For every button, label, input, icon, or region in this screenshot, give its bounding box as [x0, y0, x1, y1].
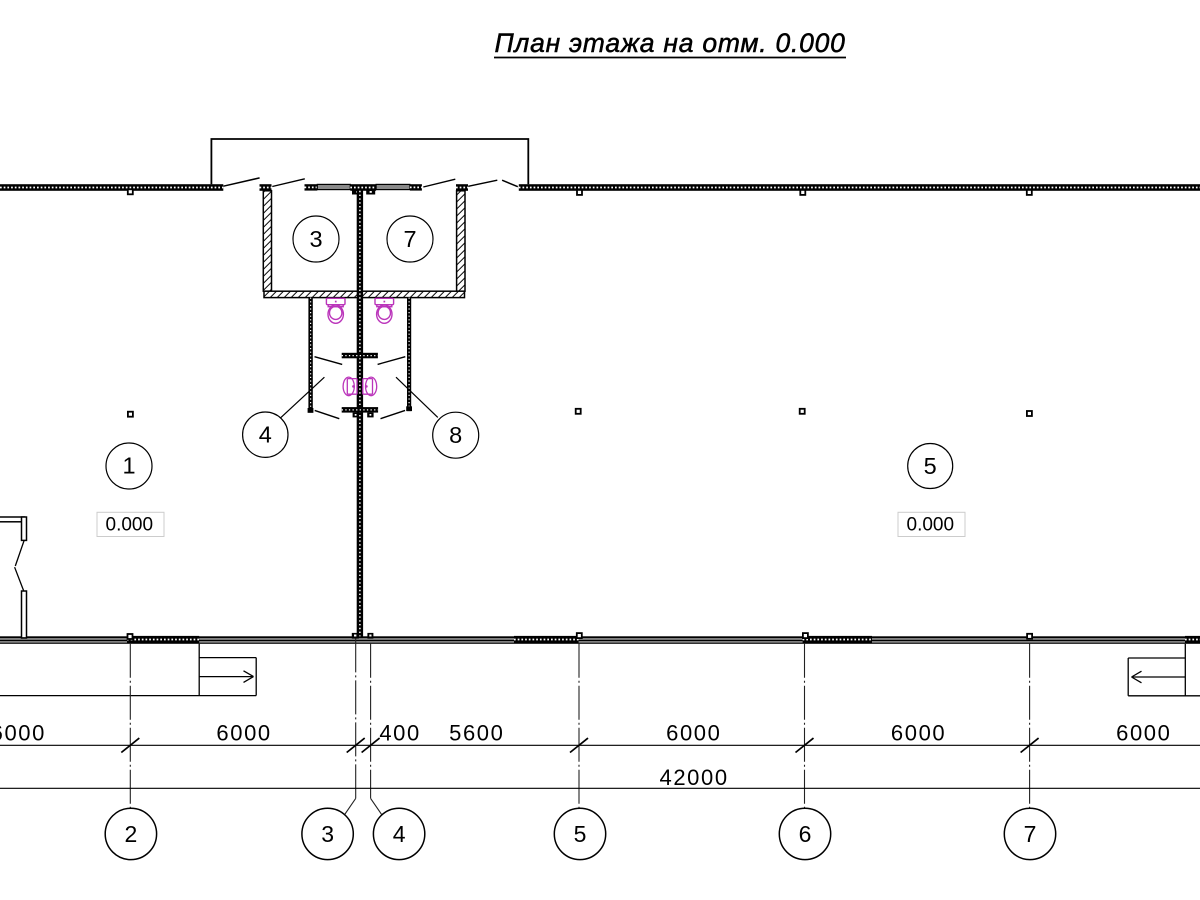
svg-text:400: 400 — [379, 720, 421, 745]
svg-text:0.000: 0.000 — [106, 515, 154, 536]
svg-text:6000: 6000 — [1116, 720, 1171, 745]
svg-text:7: 7 — [1024, 821, 1037, 847]
svg-text:План этажа на отм. 0.000: План этажа на отм. 0.000 — [494, 28, 845, 58]
svg-text:4: 4 — [393, 821, 406, 847]
svg-text:3: 3 — [309, 226, 322, 252]
svg-text:5: 5 — [574, 821, 587, 847]
svg-text:8: 8 — [449, 422, 462, 448]
svg-text:5: 5 — [924, 453, 937, 479]
svg-text:6000: 6000 — [666, 720, 721, 745]
svg-text:1: 1 — [122, 453, 135, 479]
svg-text:2: 2 — [125, 821, 138, 847]
svg-text:42000: 42000 — [660, 765, 729, 790]
svg-text:3: 3 — [321, 821, 334, 847]
svg-text:5600: 5600 — [449, 720, 504, 745]
svg-text:0.000: 0.000 — [907, 515, 955, 536]
svg-text:7: 7 — [403, 226, 416, 252]
svg-text:4: 4 — [259, 422, 272, 448]
svg-text:6000: 6000 — [0, 720, 46, 745]
svg-text:6000: 6000 — [891, 720, 946, 745]
svg-text:6000: 6000 — [216, 720, 271, 745]
svg-text:6: 6 — [799, 821, 812, 847]
